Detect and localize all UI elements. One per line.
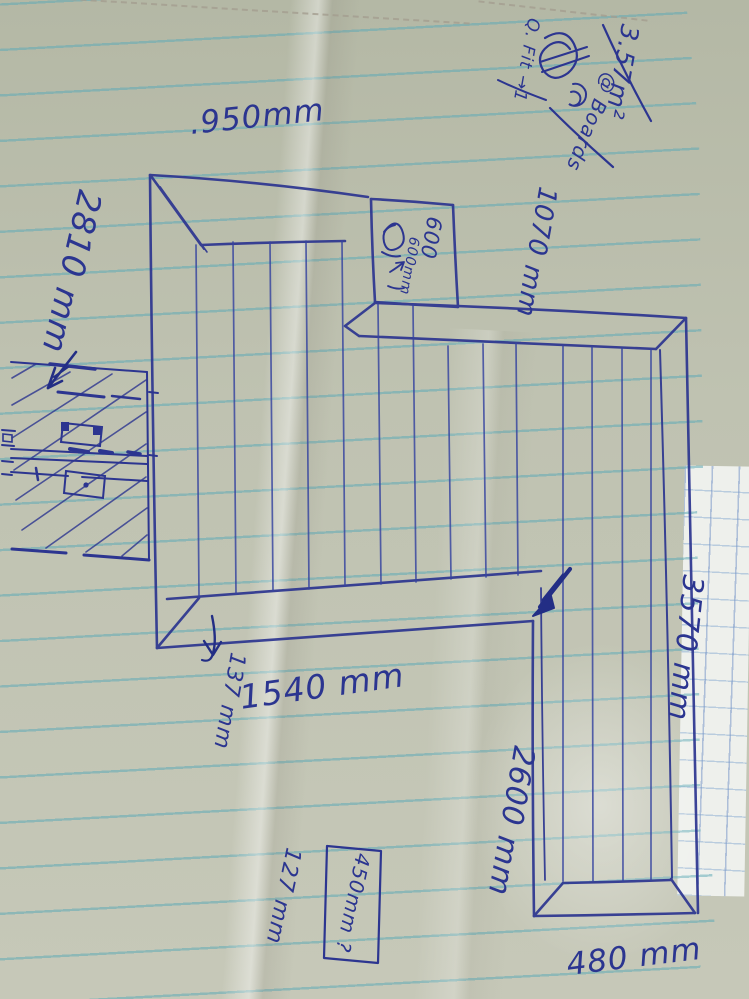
deck-boards <box>196 241 651 881</box>
photo-of-sketch: .950mm 2810 mm 600 600mm 1070 mm 1540 mm… <box>0 0 749 999</box>
sketch-ink-layer <box>0 0 749 999</box>
hatched-wall <box>2 362 158 560</box>
deck-frame <box>150 175 698 916</box>
